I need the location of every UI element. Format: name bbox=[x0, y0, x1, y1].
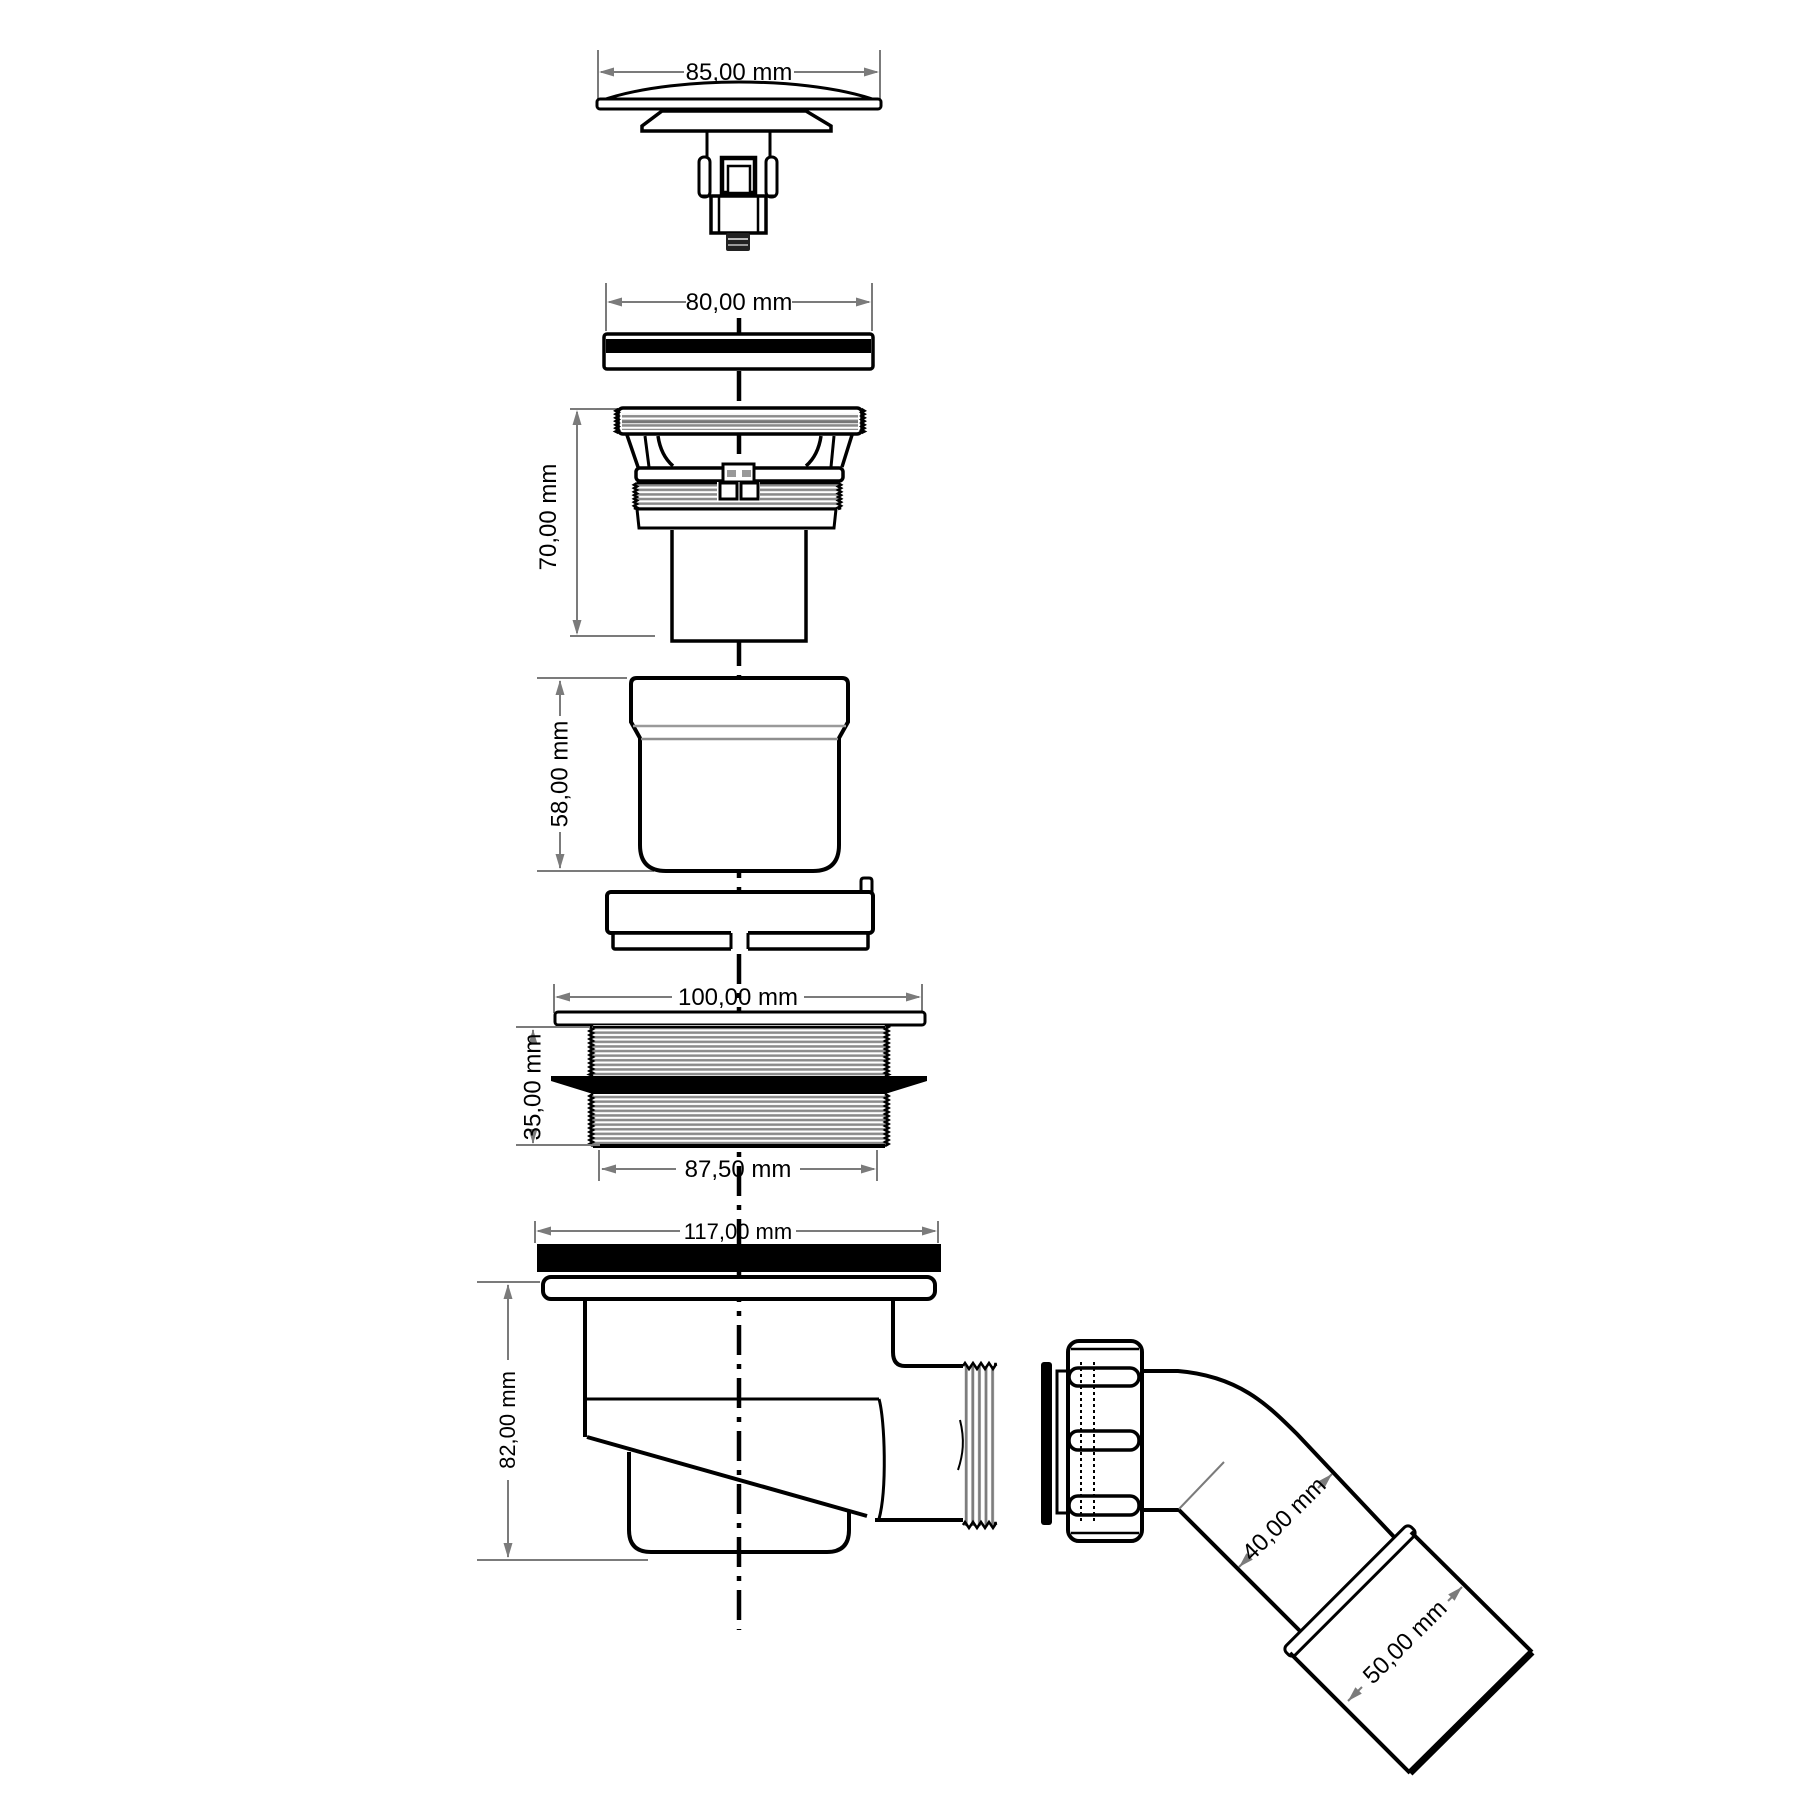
svg-text:100,00 mm: 100,00 mm bbox=[678, 984, 798, 1011]
svg-text:70,00 mm: 70,00 mm bbox=[535, 464, 562, 571]
svg-text:80,00 mm: 80,00 mm bbox=[686, 289, 793, 316]
svg-text:35,00 mm: 35,00 mm bbox=[519, 1034, 546, 1141]
svg-text:117,00 mm: 117,00 mm bbox=[684, 1219, 792, 1244]
svg-text:82,00 mm: 82,00 mm bbox=[495, 1371, 520, 1469]
svg-text:87,50 mm: 87,50 mm bbox=[685, 1156, 792, 1183]
svg-text:58,00 mm: 58,00 mm bbox=[546, 721, 573, 828]
